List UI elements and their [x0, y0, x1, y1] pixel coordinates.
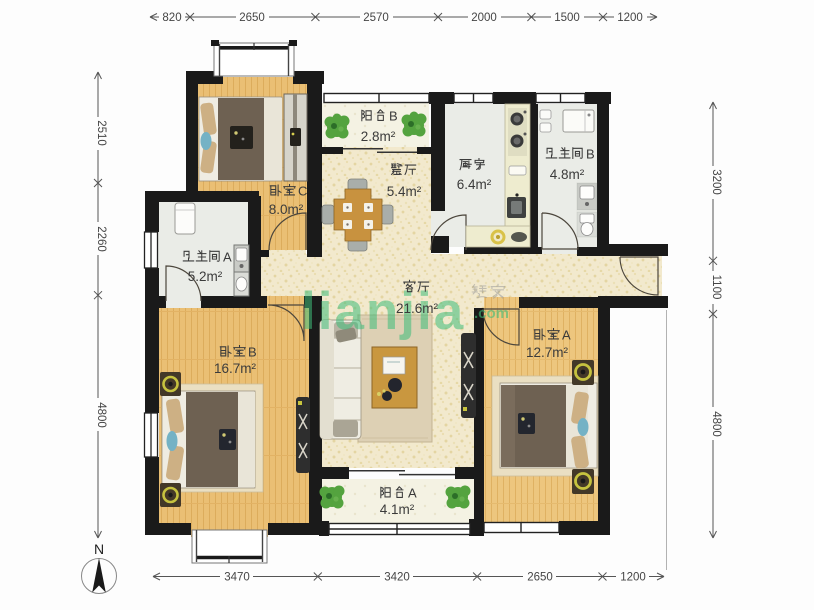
svg-text:4800: 4800 — [710, 411, 722, 437]
svg-text:C: C — [298, 184, 307, 199]
svg-text:1200: 1200 — [617, 12, 643, 24]
svg-text:B: B — [586, 147, 595, 162]
svg-text:.com: .com — [474, 305, 509, 322]
svg-text:21.6m²: 21.6m² — [396, 301, 439, 316]
svg-text:2510: 2510 — [95, 120, 107, 146]
svg-text:A: A — [562, 328, 571, 343]
svg-text:4800: 4800 — [95, 402, 107, 428]
svg-text:2570: 2570 — [363, 12, 389, 24]
svg-text:1200: 1200 — [620, 572, 646, 584]
svg-text:5.4m²: 5.4m² — [387, 184, 422, 199]
svg-text:lianjia: lianjia — [301, 282, 465, 341]
svg-text:3420: 3420 — [384, 572, 410, 584]
svg-text:2260: 2260 — [95, 226, 107, 252]
svg-text:B: B — [248, 345, 257, 360]
svg-text:2650: 2650 — [239, 12, 265, 24]
svg-text:8.0m²: 8.0m² — [269, 202, 304, 217]
svg-text:B: B — [389, 109, 398, 124]
svg-text:4.1m²: 4.1m² — [380, 502, 415, 517]
svg-text:2650: 2650 — [527, 572, 553, 584]
svg-text:5.2m²: 5.2m² — [188, 269, 223, 284]
svg-text:6.4m²: 6.4m² — [457, 177, 492, 192]
svg-text:2000: 2000 — [471, 12, 497, 24]
svg-text:16.7m²: 16.7m² — [214, 361, 257, 376]
svg-text:3200: 3200 — [710, 169, 722, 195]
svg-text:820: 820 — [162, 12, 181, 24]
svg-text:A: A — [223, 250, 232, 265]
svg-text:A: A — [408, 486, 417, 501]
svg-text:2.8m²: 2.8m² — [361, 129, 396, 144]
svg-text:N: N — [94, 541, 104, 557]
svg-text:12.7m²: 12.7m² — [526, 345, 569, 360]
svg-text:4.8m²: 4.8m² — [550, 167, 585, 182]
svg-text:3470: 3470 — [224, 572, 250, 584]
svg-text:1100: 1100 — [710, 275, 722, 300]
svg-text:1500: 1500 — [554, 12, 580, 24]
